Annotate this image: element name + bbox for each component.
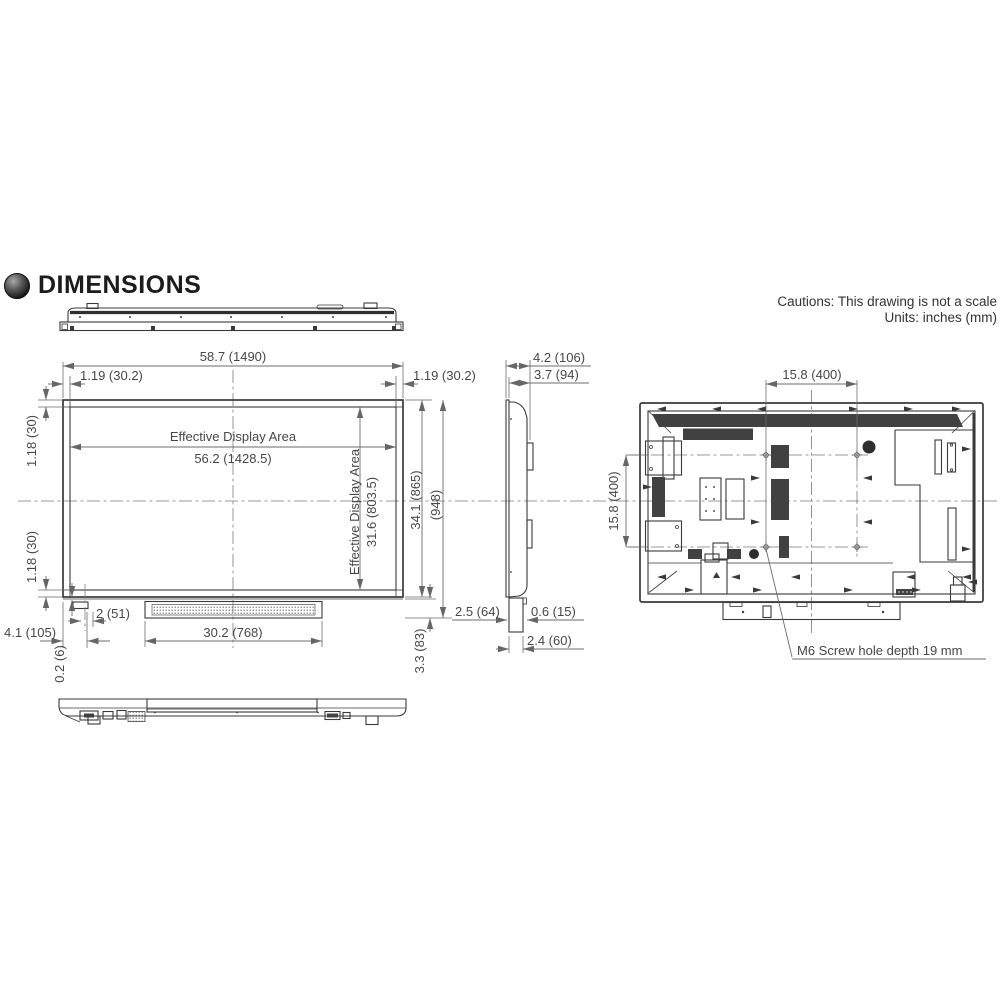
speaker-grille [152, 605, 315, 616]
dim-bottom-box-width: 4.1 (105) [4, 602, 110, 648]
rear-top-vent-band [652, 414, 963, 427]
power-arrow-mark [713, 572, 720, 578]
bezel-top-label: 1.18 (30) [24, 415, 39, 467]
front-view: 58.7 (1490) 1.19 (30.2) 1.19 (30.2) 1.18… [4, 349, 476, 683]
dim-speaker-width: 30.2 (768) [145, 621, 322, 647]
bottom-view-left-diagonal [66, 716, 80, 722]
bezel-right-label: 1.19 (30.2) [413, 368, 476, 383]
bottom-view-body [59, 699, 406, 716]
side-body-profile [509, 402, 527, 597]
rear-vent-bottom-a [688, 549, 702, 559]
rear-hole-lower-left [749, 549, 759, 559]
side-connector-bump-lower [527, 520, 532, 548]
top-view [60, 303, 403, 331]
bottom-foot-right [366, 716, 378, 725]
rear-vent-center-a [771, 445, 789, 468]
rear-switch-box [713, 543, 728, 559]
dim-sensor-offset: 2 (51) [68, 606, 130, 627]
speaker-width-label: 30.2 (768) [203, 625, 262, 640]
bottom-view [59, 699, 406, 725]
total-height-label: (948) [428, 490, 443, 520]
vesa-width-label: 15.8 (400) [782, 367, 841, 382]
power-plug [705, 554, 719, 562]
rear-vent-center-b [771, 479, 789, 520]
m6-screw-callout: M6 Screw hole depth 19 mm [766, 549, 986, 659]
dim-bezel-right: 1.19 (30.2) [381, 368, 476, 404]
dimensions-drawing: 58.7 (1490) 1.19 (30.2) 1.19 (30.2) 1.18… [0, 0, 1000, 1000]
side-bottom-piece [509, 598, 523, 632]
sensor-offset-label: 2 (51) [96, 606, 130, 621]
panel-height-label: 34.1 (865) [408, 470, 423, 529]
depth-body-label: 3.7 (94) [534, 367, 579, 382]
dim-front-gap: 2.5 (64) [452, 604, 507, 620]
rear-vent-center-c [779, 536, 789, 558]
eda-height-label: 31.6 (803.5) [364, 477, 379, 547]
m6-screw-note: M6 Screw hole depth 19 mm [797, 643, 962, 658]
connector-slot-b [948, 443, 956, 472]
ac-inlet [951, 585, 966, 601]
rear-connector-bay [895, 430, 973, 562]
rear-vent-strip-2 [683, 429, 753, 441]
vesa-height-label: 15.8 (400) [606, 471, 621, 530]
front-gap-label: 2.5 (64) [455, 604, 500, 619]
connector-slot-a [935, 440, 942, 474]
rear-vent-left [652, 477, 665, 517]
vesa-plate-left [700, 478, 721, 520]
side-view: 4.2 (106) 3.7 (94) 2.5 (64) 0.6 (15) [452, 350, 591, 653]
top-view-screws [79, 316, 387, 318]
vesa-plate-dots [705, 486, 715, 512]
rear-vent-bottom-b [727, 549, 741, 559]
dim-depth-body: 3.7 (94) [509, 367, 589, 398]
top-view-cap-right [396, 324, 402, 330]
side-screws [510, 418, 512, 573]
connector-strip-lower [948, 508, 956, 560]
rail-tabs [730, 603, 880, 607]
bottom-view-recess [147, 699, 317, 712]
rear-view: 15.8 (400) 15.8 (400) M6 Screw hole dept… [606, 367, 986, 659]
stand-depth-label: 2.4 (60) [527, 633, 572, 648]
eda-title-h: Effective Display Area [170, 429, 297, 444]
ac-inlet-top [954, 577, 963, 585]
dimensions-sheet: DIMENSIONS Cautions: This drawing is not… [0, 0, 1000, 1000]
bottom-box-height-label: 0.2 (6) [52, 645, 67, 683]
dim-eda-height: Effective Display Area 31.6 (803.5) [347, 407, 379, 590]
rear-handle-bar [663, 437, 674, 479]
rail-slot [763, 606, 771, 618]
top-view-cap-left [62, 324, 68, 330]
top-view-feet [70, 326, 396, 330]
side-connector-bump-upper [527, 443, 533, 470]
eda-width-label: 56.2 (1428.5) [194, 451, 271, 466]
front-sensor-box [73, 602, 88, 609]
bottom-box-width-label: 4.1 (105) [4, 625, 56, 640]
eda-title-v: Effective Display Area [347, 448, 362, 575]
dim-depth-total: 4.2 (106) [506, 350, 591, 440]
bezel-left-label: 1.19 (30.2) [80, 368, 143, 383]
dim-stand-step: 0.6 (15) [527, 604, 584, 620]
bezel-bottom-label: 1.18 (30) [24, 531, 39, 583]
side-front-face [506, 400, 509, 597]
bottom-strip-height-label: 3.3 (83) [412, 629, 427, 674]
top-view-body [68, 308, 396, 322]
dim-stand-depth: 2.4 (60) [496, 633, 584, 653]
rear-hole-upper-right [863, 441, 876, 454]
connector-slot-screws [950, 444, 952, 471]
overall-width-label: 58.7 (1490) [200, 349, 267, 364]
vesa-plate-right [726, 479, 744, 519]
stand-step-label: 0.6 (15) [531, 604, 576, 619]
dim-vesa-width: 15.8 (400) [766, 367, 857, 384]
dim-bezel-left: 1.19 (30.2) [48, 368, 143, 404]
depth-total-label: 4.2 (106) [533, 350, 585, 365]
dim-bottom-strip-height: 3.3 (83) [412, 584, 430, 673]
